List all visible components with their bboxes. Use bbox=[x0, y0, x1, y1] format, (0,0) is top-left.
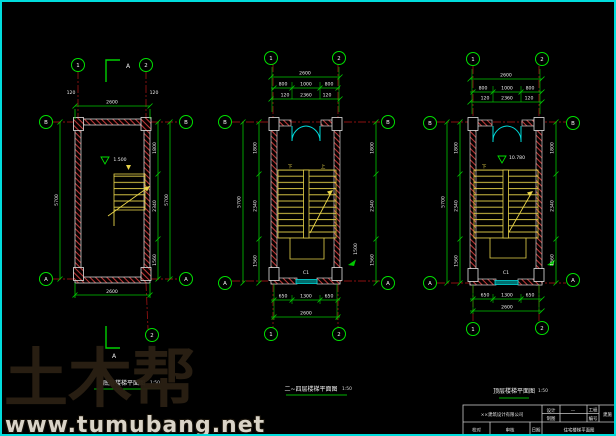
axis-bubble-label: 1 bbox=[471, 327, 474, 333]
axis-bubble-label: 1 bbox=[471, 57, 474, 63]
dim-text: 2600 bbox=[300, 311, 312, 317]
axis-bubble: A bbox=[219, 277, 232, 290]
column bbox=[74, 118, 84, 131]
elevation-value: 1.500 bbox=[113, 157, 126, 163]
window-sill bbox=[296, 280, 317, 284]
dim-text: 2340 bbox=[454, 200, 460, 212]
axis-bubble-label: 2 bbox=[144, 63, 147, 69]
axis-bubble: A bbox=[567, 274, 580, 287]
axis-bubble: 2 bbox=[333, 52, 346, 65]
axis-bubble: B bbox=[382, 116, 395, 129]
section-mark-top: A bbox=[106, 60, 131, 82]
dim-text: 650 bbox=[279, 294, 288, 300]
window-sill bbox=[495, 281, 518, 285]
column bbox=[534, 269, 544, 282]
column bbox=[269, 268, 279, 281]
dim-text: 120 bbox=[323, 93, 332, 99]
axis-bubble-label: B bbox=[223, 120, 227, 126]
plan-title: 二~四层楼梯平面图 bbox=[284, 385, 337, 393]
dim-text: 1560 bbox=[454, 255, 460, 267]
dim-text: 2340 bbox=[253, 200, 259, 212]
axis-bubble-label: 2 bbox=[337, 56, 340, 62]
dim-text: 800 bbox=[279, 82, 288, 88]
dim-text: 1300 bbox=[300, 294, 312, 300]
title-block: ××建筑设计有限公司 设计 制图 — 工程 编号 建施 校对 审核 日期 住宅楼… bbox=[463, 405, 616, 436]
plan-standard-stair: 下 上 bbox=[278, 163, 336, 259]
axis-bubble: A bbox=[40, 273, 53, 286]
draft-label: 制图 bbox=[547, 415, 556, 422]
column bbox=[141, 268, 151, 281]
axis-bubble: 1 bbox=[467, 323, 480, 336]
number-label: 编号 bbox=[589, 415, 598, 422]
dim-text: 2340 bbox=[152, 200, 158, 212]
stair-landing bbox=[290, 238, 324, 259]
axis-bubble-label: 2 bbox=[337, 332, 340, 338]
value-dash: — bbox=[571, 409, 576, 414]
dim-text: 1560 bbox=[550, 254, 556, 266]
axis-bubble-label: A bbox=[571, 278, 575, 284]
axis-bubble: 1 bbox=[467, 53, 480, 66]
dim-text: 1800 bbox=[370, 142, 376, 154]
axis-bubble-label: 2 bbox=[150, 333, 153, 339]
axis-bubble: B bbox=[567, 117, 580, 130]
axis-bubble-label: A bbox=[223, 281, 227, 287]
axis-bubble: 2 bbox=[146, 329, 159, 342]
axis-bubble-label: B bbox=[386, 120, 390, 126]
plan-top-door bbox=[493, 126, 521, 142]
plan-standard-label: 二~四层楼梯平面图 1:50 bbox=[284, 385, 352, 395]
dim-text: 1560 bbox=[253, 255, 259, 267]
plan-top-elevation-marker: 10.780 bbox=[498, 155, 525, 163]
column bbox=[269, 118, 279, 131]
axis-bubble-label: A bbox=[44, 277, 48, 283]
axis-bubble-label: B bbox=[184, 120, 188, 126]
dim-text: 800 bbox=[526, 86, 535, 92]
column bbox=[332, 268, 342, 281]
axis-bubble: 1 bbox=[72, 59, 85, 72]
dim-text: 120 bbox=[67, 90, 76, 96]
stair-landing bbox=[490, 238, 526, 258]
dim-text: 120 bbox=[281, 93, 290, 99]
date-label: 日期 bbox=[532, 428, 541, 434]
plan-standard-window: C1 bbox=[296, 270, 317, 284]
axis-bubble-label: 1 bbox=[269, 56, 272, 62]
flight-up-label: 上 bbox=[321, 163, 326, 170]
column bbox=[332, 118, 342, 131]
dim-text: 5700 bbox=[237, 196, 243, 208]
dim-text: 2600 bbox=[501, 305, 513, 311]
leader-arrow-icon bbox=[348, 260, 356, 267]
column bbox=[468, 269, 478, 282]
stair-rail bbox=[304, 170, 310, 238]
dim-text: 1800 bbox=[253, 142, 259, 154]
window-tag: C1 bbox=[503, 270, 509, 276]
axis-bubble-label: 2 bbox=[540, 57, 543, 63]
dim-text: 1800 bbox=[152, 142, 158, 154]
axis-bubble-label: A bbox=[386, 281, 390, 287]
axis-bubble: 1 bbox=[265, 52, 278, 65]
axis-bubble-label: 1 bbox=[269, 332, 272, 338]
drawing-name: 住宅楼梯平面图 bbox=[564, 427, 595, 434]
axis-bubble: 2 bbox=[333, 328, 346, 341]
dim-text: 5700 bbox=[441, 196, 447, 208]
dim-text: 2340 bbox=[550, 200, 556, 212]
stage-label: 建施 bbox=[603, 411, 612, 418]
cad-sheet: 1.500 2600 120 120 2600 5700 1800 2340 1… bbox=[0, 0, 616, 436]
plan-top: 10.780 C1 下 bbox=[424, 53, 580, 399]
axis-bubble: A bbox=[424, 277, 437, 290]
dim-text: 2340 bbox=[370, 200, 376, 212]
dim-text: 1560 bbox=[370, 254, 376, 266]
plan-scale: 1:50 bbox=[538, 388, 548, 394]
dim-text: 120 bbox=[481, 96, 490, 102]
axis-bubble: 1 bbox=[265, 328, 278, 341]
dim-text: 120 bbox=[150, 90, 159, 96]
project-label: 工程 bbox=[589, 407, 598, 414]
stair-rail bbox=[503, 170, 509, 238]
window-tag: C1 bbox=[303, 270, 309, 276]
watermark-url: www.tumubang.net bbox=[5, 413, 265, 436]
axis-bubble-label: B bbox=[428, 121, 432, 127]
dim-text: 800 bbox=[479, 86, 488, 92]
dim-text: 650 bbox=[481, 293, 490, 299]
axis-bubble: 2 bbox=[140, 59, 153, 72]
dim-text: 2600 bbox=[299, 71, 311, 77]
dim-text: 650 bbox=[526, 293, 535, 299]
dim-text: 2360 bbox=[300, 93, 312, 99]
design-label: 设计 bbox=[547, 407, 556, 414]
axis-bubble: B bbox=[40, 116, 53, 129]
dim-text: 2600 bbox=[106, 100, 118, 106]
plan-scale: 1:50 bbox=[342, 386, 352, 392]
dim-text: 1500 bbox=[353, 243, 359, 255]
dim-text: 2600 bbox=[106, 289, 118, 295]
dim-text: 650 bbox=[325, 294, 334, 300]
audit-label: 审核 bbox=[506, 427, 515, 434]
axis-bubble-label: 1 bbox=[76, 63, 79, 69]
plan-ground: 1.500 2600 120 120 2600 5700 1800 2340 1… bbox=[40, 59, 193, 390]
column bbox=[468, 118, 478, 131]
watermark-logo: 土木帮 bbox=[4, 348, 196, 412]
plan-standard-door bbox=[292, 126, 320, 141]
dim-text: 5700 bbox=[164, 194, 170, 206]
axis-bubble-label: 2 bbox=[540, 326, 543, 332]
axis-bubble-label: B bbox=[44, 120, 48, 126]
axis-bubble: A bbox=[180, 273, 193, 286]
plan-top-stair: 下 bbox=[474, 164, 538, 258]
dim-text: 1300 bbox=[501, 293, 513, 299]
dim-text: 800 bbox=[325, 82, 334, 88]
column bbox=[74, 268, 84, 281]
dim-text: 120 bbox=[525, 96, 534, 102]
dim-text: 1800 bbox=[550, 142, 556, 154]
axis-bubble-label: B bbox=[571, 121, 575, 127]
dim-text: 1800 bbox=[454, 142, 460, 154]
section-mark-label: A bbox=[126, 63, 131, 70]
check-label: 校对 bbox=[472, 427, 481, 434]
axis-bubble-label: A bbox=[428, 281, 432, 287]
axis-bubble: B bbox=[424, 117, 437, 130]
elevation-value: 10.780 bbox=[509, 155, 525, 161]
axis-bubble: 2 bbox=[536, 53, 549, 66]
plan-top-label: 顶层楼梯平面图 1:50 bbox=[493, 387, 548, 398]
axis-bubble: B bbox=[219, 116, 232, 129]
dim-text: 2600 bbox=[500, 73, 512, 79]
elevation-triangle-icon bbox=[498, 156, 506, 163]
dim-text: 5700 bbox=[54, 194, 60, 206]
axis-bubble-label: A bbox=[184, 277, 188, 283]
flight-down-label: 下 bbox=[482, 164, 487, 170]
dim-text: 1000 bbox=[300, 82, 312, 88]
company-name: ××建筑设计有限公司 bbox=[481, 411, 523, 418]
plan-title: 顶层楼梯平面图 bbox=[493, 387, 535, 395]
dim-text: 1560 bbox=[152, 254, 158, 266]
plan-standard: C1 下 上 2600 bbox=[219, 52, 395, 396]
column bbox=[534, 118, 544, 131]
axis-bubble: B bbox=[180, 116, 193, 129]
dim-text: 1000 bbox=[501, 86, 513, 92]
dim-text: 2360 bbox=[501, 96, 513, 102]
axis-bubble: 2 bbox=[536, 322, 549, 335]
axis-bubble: A bbox=[382, 277, 395, 290]
flight-down-label: 下 bbox=[288, 164, 293, 170]
plan-top-window: C1 bbox=[495, 270, 518, 285]
column bbox=[141, 118, 151, 131]
